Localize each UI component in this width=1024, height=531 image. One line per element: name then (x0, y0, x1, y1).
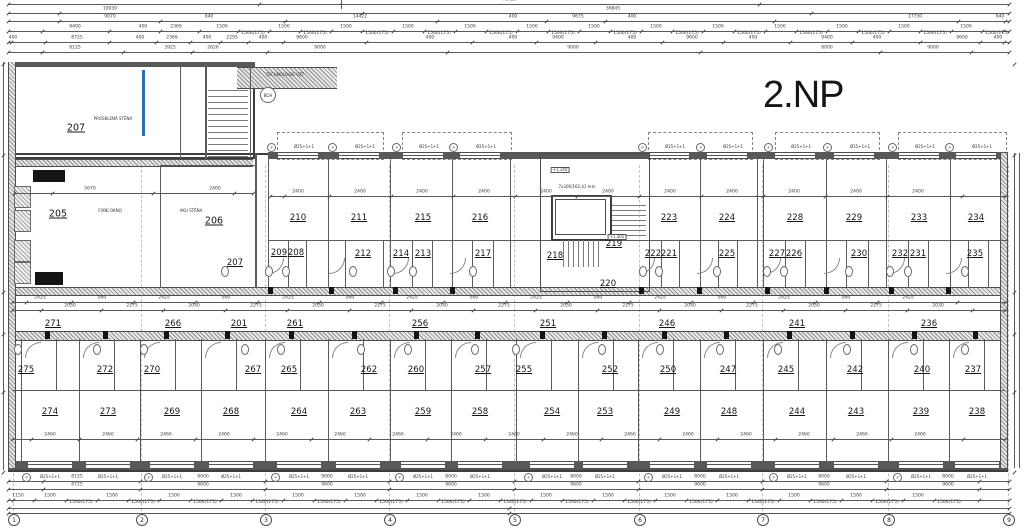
dim-label: 36845 (606, 8, 620, 13)
interior-wall (679, 240, 680, 288)
dim-label: 2369 (166, 37, 177, 42)
interior-wall (306, 240, 307, 288)
interior-wall (432, 240, 433, 288)
room-label: 248 (721, 407, 737, 417)
dim-tick (1007, 40, 1011, 44)
dim-label: 2275 (870, 305, 881, 310)
interior-wall (928, 240, 929, 288)
toilet-fixture (886, 266, 894, 277)
dim-label: 1500 (602, 495, 613, 500)
interior-wall (472, 240, 473, 288)
dim-label: 2400 (912, 191, 923, 196)
toilet-fixture (910, 344, 918, 355)
dim-label: 1500(175) (937, 501, 961, 506)
facade-note: Ø25+1+1 (850, 145, 870, 149)
window (955, 461, 999, 469)
dim-label: 1500 (650, 26, 661, 31)
dim-label: 2030 (436, 305, 447, 310)
interior-wall (638, 339, 639, 462)
dim-label: 1500(175) (317, 501, 341, 506)
door-threshold (973, 331, 978, 339)
facade-note: Ø25+1+1 (972, 145, 992, 149)
door-threshold (889, 287, 894, 294)
dim-label: 1500(175) (565, 501, 589, 506)
dim-label: 2460 (450, 434, 461, 439)
window (86, 461, 130, 469)
window (834, 461, 878, 469)
dim-label: 2400 (209, 188, 220, 193)
dim-label: 2030 (64, 305, 75, 310)
p-mark: P (823, 143, 832, 152)
facade-note: Ø25+1+1 (662, 475, 682, 479)
floor-title: 2.NP (763, 74, 843, 117)
interior-wall (160, 165, 161, 288)
room-label: 264 (291, 407, 307, 417)
door-threshold (352, 331, 357, 339)
dim-tick (1012, 470, 1016, 474)
p-mark: P (449, 143, 458, 152)
room-label: 242 (847, 365, 863, 375)
dim-tick (1007, 50, 1011, 54)
dim-label: 2425 (34, 297, 45, 302)
p-mark: P (769, 473, 778, 482)
toilet-fixture (716, 344, 724, 355)
facade-note: Ø25+1+1 (419, 145, 439, 149)
door-threshold (414, 331, 419, 339)
dim-label: 2460 (44, 434, 55, 439)
grid-bubble: 3 (260, 514, 272, 526)
facade-note: Ø25+1+1 (846, 475, 866, 479)
door-threshold (850, 331, 855, 339)
dim-label: 2460 (624, 434, 635, 439)
dim-label: 9000 (567, 47, 578, 52)
room-label: 250 (660, 365, 676, 375)
dim-label: 9000 (321, 476, 332, 481)
door-threshold (268, 287, 273, 294)
p-mark: P (271, 473, 280, 482)
stair-tread (593, 240, 594, 267)
annotation-text: +1,305 (608, 234, 627, 240)
dim-label: 9600 (197, 484, 208, 489)
dim-label: 2460 (740, 434, 751, 439)
interior-wall (988, 240, 989, 288)
interior-wall (700, 339, 701, 462)
window (899, 461, 943, 469)
room-label: 232 (892, 249, 908, 259)
interior-wall (493, 240, 494, 288)
toilet-fixture (409, 266, 417, 277)
grid-bubble: 1 (8, 514, 20, 526)
stair-tread (208, 108, 248, 109)
dim-label: 1500(175) (131, 501, 155, 506)
interior-wall (798, 339, 799, 390)
dim-label: 2400 (602, 191, 613, 196)
room-label: 216 (472, 213, 488, 223)
wardrobe (14, 210, 31, 232)
dim-label: 2400 (788, 191, 799, 196)
room-label: 207 (67, 123, 85, 134)
stair-tread (612, 225, 646, 226)
facade-note: Ø25+1+1 (595, 475, 615, 479)
dim-label: 14422 (353, 16, 367, 21)
dim-label: 9600 (570, 484, 581, 489)
furniture-bed (35, 272, 63, 285)
dim-label: 2030 (312, 305, 323, 310)
dim-label: 1500 (464, 26, 475, 31)
room-label: 274 (42, 407, 58, 417)
interior-wall (205, 62, 207, 159)
interior-wall (180, 62, 181, 159)
p-mark: P (893, 473, 902, 482)
interior-wall (79, 339, 80, 462)
room-label: 257 (475, 365, 491, 375)
window (530, 461, 574, 469)
dim-label: 2400 (850, 191, 861, 196)
dim-label: 1500(175) (627, 501, 651, 506)
room-label: 210 (290, 213, 306, 223)
toilet-fixture (961, 344, 969, 355)
dim-label: 2460 (914, 434, 925, 439)
stair-tread (573, 240, 574, 267)
room-label: 269 (164, 407, 180, 417)
dim-label: 940 (205, 16, 214, 21)
window (278, 152, 318, 159)
room-label: 236 (921, 319, 937, 329)
dim-label: 1150 (12, 495, 23, 500)
dim-label: 9600 (956, 37, 967, 42)
dim-label: 1500 (960, 26, 971, 31)
dim-label: 2425 (158, 297, 169, 302)
interior-wall (888, 339, 889, 462)
dim-label: 48725 (502, 0, 516, 3)
dim-label: 2460 (334, 434, 345, 439)
dim-label: 1500 (354, 495, 365, 500)
room-label: 231 (910, 249, 926, 259)
corridor-wall-lower (8, 331, 1008, 341)
stair-tread (612, 205, 646, 206)
dim-label: 400 (873, 37, 882, 42)
dim-label: 2400 (478, 191, 489, 196)
p-mark: P (144, 473, 153, 482)
room-label: 228 (787, 213, 803, 223)
toilet-fixture (843, 344, 851, 355)
dim-label: 400 (749, 37, 758, 42)
p-mark: P (696, 143, 705, 152)
dim-label: 1500(175) (923, 32, 947, 37)
dim-label: 3925 (164, 47, 175, 52)
dim-label: 2425 (406, 297, 417, 302)
room-label: 234 (968, 213, 984, 223)
interior-wall (908, 240, 909, 288)
dim-label: 1500(175) (255, 501, 279, 506)
interior-wall (578, 339, 579, 462)
dim-label: 9600 (694, 484, 705, 489)
stair-tread (208, 156, 248, 157)
dim-label: 2425 (530, 297, 541, 302)
door-threshold (475, 331, 480, 339)
stair-tread (563, 240, 564, 267)
dim-label: 17730 (908, 16, 922, 21)
room-label: 241 (789, 319, 805, 329)
door-threshold (697, 287, 702, 294)
building-outline (8, 153, 1008, 472)
interior-wall (265, 339, 266, 462)
room-label: 251 (540, 319, 556, 329)
dim-right-line (1019, 153, 1020, 468)
room-label: 253 (597, 407, 613, 417)
interior-wall (412, 240, 413, 288)
stair-tread (588, 240, 589, 267)
dim-bottom-line (8, 489, 1009, 490)
facade-note: Ø25+1+1 (470, 475, 490, 479)
room-label: 215 (415, 213, 431, 223)
door-threshold (393, 287, 398, 294)
facade-note: Ø25+1+1 (348, 475, 368, 479)
toilet-fixture (349, 266, 357, 277)
door-threshold (289, 331, 294, 339)
room-label: 275 (18, 365, 34, 375)
door-threshold (329, 287, 334, 294)
facade-note: Ø25+1+1 (289, 475, 309, 479)
dim-label: 2460 (392, 434, 403, 439)
stair-tread (583, 240, 584, 267)
toilet-fixture (357, 344, 365, 355)
dim-label: 2460 (798, 434, 809, 439)
dim-label: 1500(175) (365, 32, 389, 37)
dim-label: 400 (628, 16, 637, 21)
p-mark: P (22, 473, 31, 482)
interior-wall (345, 240, 346, 288)
interior-wall (250, 62, 251, 159)
gallery-walkway (237, 67, 337, 89)
dim-top-line (8, 42, 1009, 43)
stair-tread (208, 138, 248, 139)
toilet-fixture (471, 344, 479, 355)
dim-label: 1500 (526, 26, 537, 31)
dim-label: 8125 (69, 47, 80, 52)
grid-bubble: 9 (1003, 514, 1015, 526)
dim-label: 2275 (498, 305, 509, 310)
dim-label: 1500 (106, 495, 117, 500)
grid-bubble: 5 (509, 514, 521, 526)
dim-label: 9675 (572, 16, 583, 21)
room-label: 237 (965, 365, 981, 375)
window (339, 152, 379, 159)
dim-label: 9600 (942, 484, 953, 489)
dim-label: 400 (994, 37, 1003, 42)
interior-wall (661, 240, 662, 288)
dim-label: 2369 (170, 26, 181, 31)
dim-label: 1500 (788, 495, 799, 500)
toilet-fixture (469, 266, 477, 277)
room-label: 270 (144, 365, 160, 375)
window (834, 152, 874, 159)
facade-note: Ø25+1+1 (723, 145, 743, 149)
toilet-fixture (387, 266, 395, 277)
facade-note: Ø25+1+1 (355, 145, 375, 149)
door-threshold (45, 331, 50, 339)
room-label: 233 (911, 213, 927, 223)
window (458, 461, 502, 469)
stair-tread (612, 230, 646, 231)
toilet-fixture (904, 266, 912, 277)
window (150, 461, 194, 469)
glass-wall (142, 70, 145, 136)
dim-label: 1500 (168, 495, 179, 500)
room-label: 214 (393, 249, 409, 259)
annotation-text: +1,140 (551, 167, 570, 173)
room-label: 268 (223, 407, 239, 417)
dim-label: 2030 (188, 305, 199, 310)
room-label: 261 (287, 319, 303, 329)
room206-top-line (160, 165, 255, 166)
dim-label: 2460 (566, 434, 577, 439)
room-label: 245 (778, 365, 794, 375)
interior-wall (56, 339, 57, 390)
dim-top-tick (341, 0, 342, 9)
dim-label: 1500(175) (875, 501, 899, 506)
dim-label: 8000 (821, 47, 832, 52)
dim-label: 9000 (927, 47, 938, 52)
dim-label: 1500 (712, 26, 723, 31)
dim-label: 1500(175) (689, 501, 713, 506)
dim-label: 9070 (104, 16, 115, 21)
dim-label: 2425 (902, 297, 913, 302)
dim-label: 1500 (912, 495, 923, 500)
annotation-text: TECHNOLOGIE VZT (266, 73, 304, 77)
facade-note: Ø25+1+1 (719, 475, 739, 479)
wardrobe (14, 240, 31, 262)
interior-wall (255, 153, 257, 288)
interior-wall (201, 339, 202, 462)
facade-note: Ø25+1+1 (162, 475, 182, 479)
dim-label: 900 (222, 297, 231, 302)
annotation-text: 7x300/162,41 mm (559, 185, 596, 189)
dim-left-line (3, 62, 4, 470)
room-label: 226 (786, 249, 802, 259)
p-mark: P (267, 143, 276, 152)
dim-label: 2425 (778, 297, 789, 302)
p-mark: P (888, 143, 897, 152)
wardrobe (14, 262, 31, 284)
grid-bubble: 2 (136, 514, 148, 526)
p-mark: P (945, 143, 954, 152)
elevator-shaft-inner (555, 199, 606, 235)
stair-tread (612, 220, 646, 221)
facade-note: Ø25+1+1 (221, 475, 241, 479)
dim-label: 900 (842, 297, 851, 302)
p-mark: P (524, 473, 533, 482)
room-label: 271 (45, 319, 61, 329)
interior-wall (510, 153, 511, 288)
room-label: 273 (100, 407, 116, 417)
dim-label: 400 (139, 26, 148, 31)
dim-label: 2400 (726, 191, 737, 196)
dim-label: 1500 (278, 26, 289, 31)
dim-label: 2460 (276, 434, 287, 439)
annotation-text: PROSKLENÁ STĚNA (94, 117, 133, 121)
dim-label: 1500(175) (799, 32, 823, 37)
room-label: 213 (415, 249, 431, 259)
wardrobe (14, 186, 31, 208)
window (899, 152, 939, 159)
dim-label: 1500 (588, 26, 599, 31)
toilet-fixture (961, 266, 969, 277)
room-label: 229 (846, 213, 862, 223)
window (583, 461, 627, 469)
door-threshold (103, 331, 108, 339)
dim-label: 2275 (746, 305, 757, 310)
p-mark: P (644, 473, 653, 482)
toilet-fixture (282, 266, 290, 277)
dim-tick (1007, 2, 1011, 6)
toilet-fixture (93, 344, 101, 355)
door-threshold (724, 331, 729, 339)
p-mark: P (395, 473, 404, 482)
stair-tread (612, 215, 646, 216)
dim-label: 2030 (684, 305, 695, 310)
stair-tread (208, 150, 248, 151)
interior-wall (328, 339, 329, 462)
dim-label: 900 (718, 297, 727, 302)
room-label: 222 (645, 249, 661, 259)
window (775, 152, 815, 159)
dim-label: 400 (628, 37, 637, 42)
window (277, 461, 321, 469)
interior-wall (757, 153, 758, 288)
grid-bubble: 4 (384, 514, 396, 526)
toilet-fixture (265, 266, 273, 277)
toilet-fixture (140, 344, 148, 355)
dim-label: 2425 (654, 297, 665, 302)
interior-wall (140, 339, 141, 462)
room-label: 254 (544, 407, 560, 417)
bottom-band-line (12, 390, 1005, 391)
grid-bubble: 8 (883, 514, 895, 526)
dim-label: 400 (509, 37, 518, 42)
room-label: 240 (914, 365, 930, 375)
dim-label: 2460 (508, 434, 519, 439)
dim-label: 9400 (69, 26, 80, 31)
window (707, 152, 747, 159)
toilet-fixture (241, 344, 249, 355)
room-label: 224 (719, 213, 735, 223)
dim-label: 900 (98, 297, 107, 302)
left-block-top-wall (8, 62, 255, 67)
dim-bottom-line (8, 481, 1009, 482)
dim-label: 2030 (560, 305, 571, 310)
toilet-fixture (763, 266, 771, 277)
dim-label: 8125 (71, 476, 82, 481)
dim-label: 900 (594, 297, 603, 302)
room-label: 218 (547, 251, 563, 261)
room-label: 239 (913, 407, 929, 417)
window (460, 152, 500, 159)
toilet-fixture (512, 344, 520, 355)
dim-label: 2295 (226, 37, 237, 42)
dim-label: 400 (136, 37, 145, 42)
room-label: 247 (720, 365, 736, 375)
dim-label: 2400 (416, 191, 427, 196)
facade-note: Ø25+1+1 (665, 145, 685, 149)
dim-label: 8000 (445, 476, 456, 481)
window (403, 152, 443, 159)
dim-label: 900 (470, 297, 479, 302)
room-label: 267 (245, 365, 261, 375)
interior-wall (984, 339, 985, 390)
interior-wall (949, 339, 950, 462)
dim-label: 9600 (445, 484, 456, 489)
